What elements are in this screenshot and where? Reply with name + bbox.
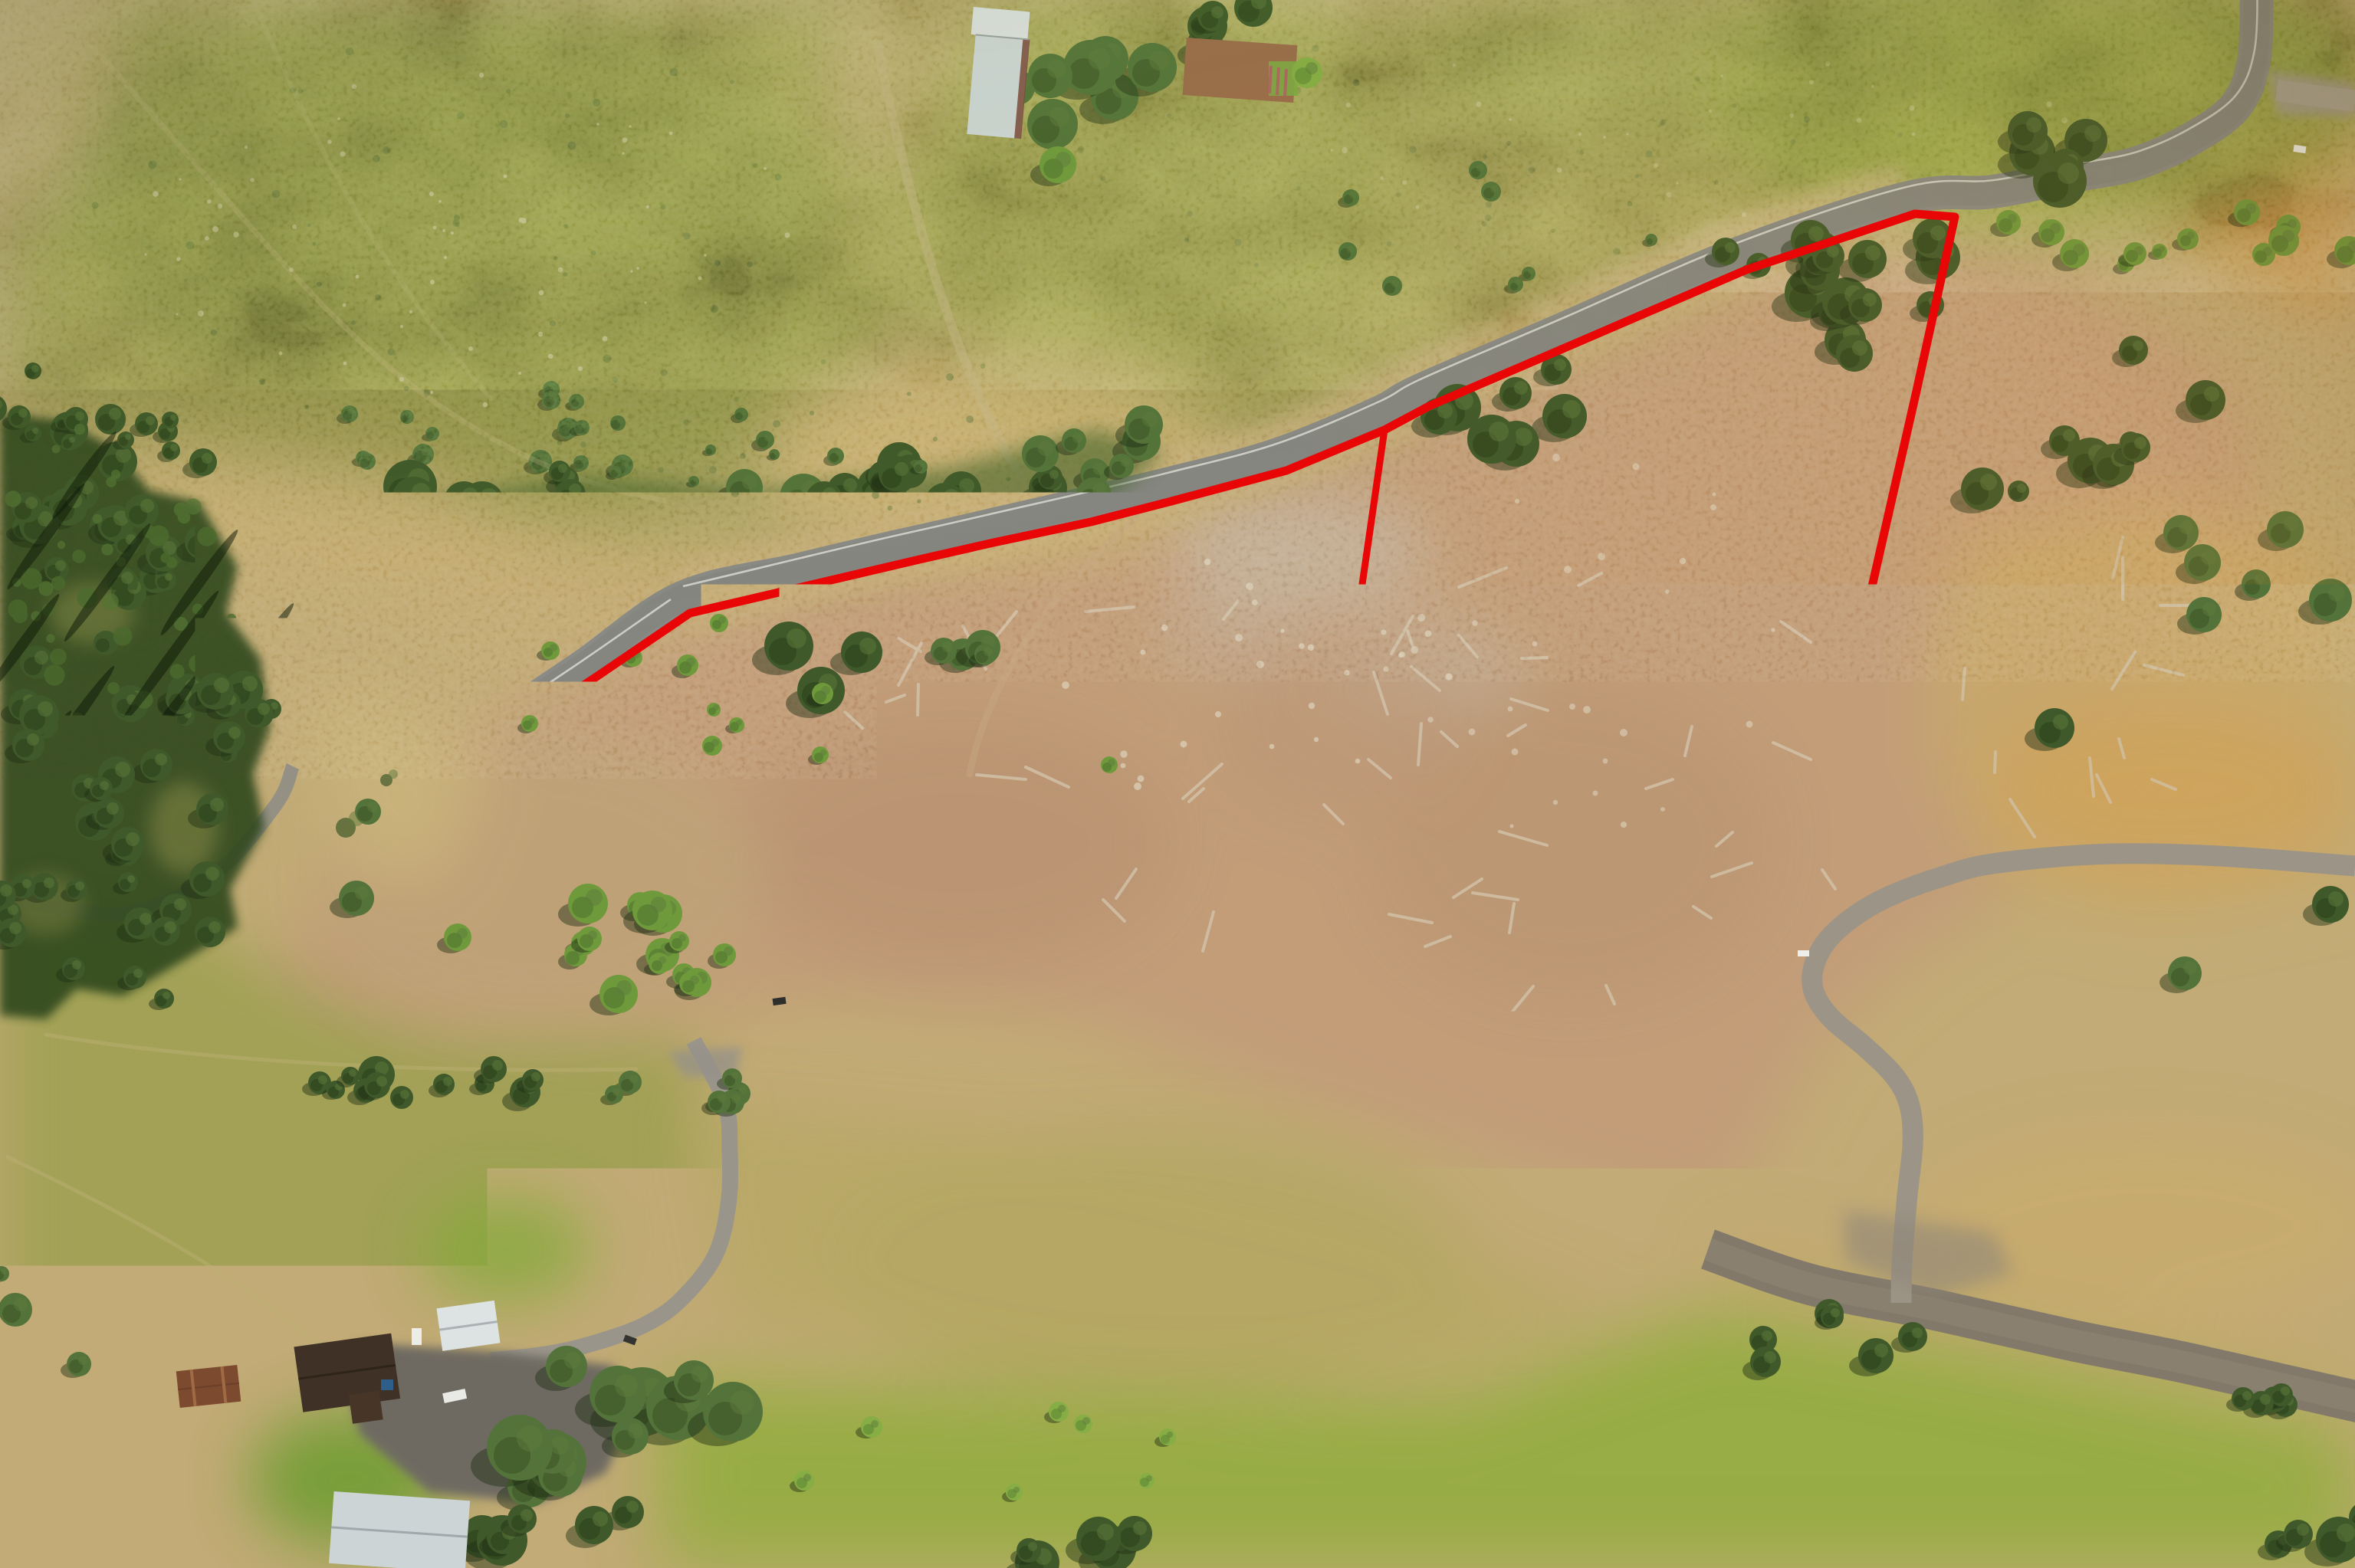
svg-text:Lot 4: Lot 4 [1503, 724, 1620, 779]
svg-text:MLS: MLS [2254, 1466, 2344, 1514]
svg-text:This is not a survey. Buyer is: This is not a survey. Buyer is to verify… [626, 1502, 1830, 1551]
svg-text:Lot 3: Lot 3 [832, 723, 949, 778]
